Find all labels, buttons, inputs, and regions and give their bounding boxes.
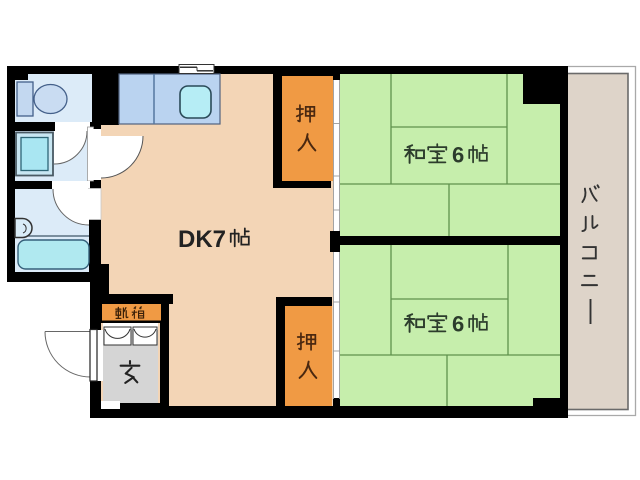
svg-text:DK7: DK7 <box>178 226 226 253</box>
svg-text:6: 6 <box>452 312 464 337</box>
svg-text:6: 6 <box>452 143 464 168</box>
